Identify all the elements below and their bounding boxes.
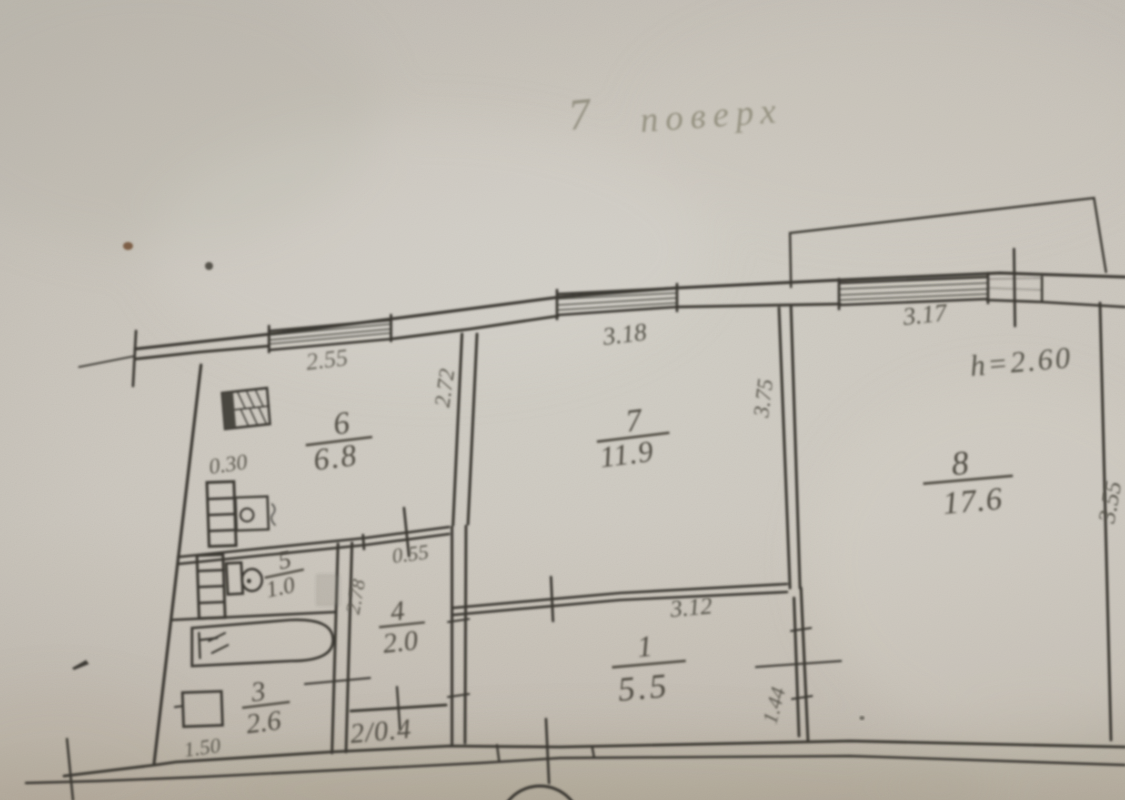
svg-text:5.5: 5.5 [616, 667, 671, 708]
svg-text:1: 1 [636, 630, 654, 664]
svg-text:3.75: 3.75 [748, 377, 778, 419]
svg-text:17.6: 17.6 [941, 480, 1004, 521]
svg-text:2.6: 2.6 [244, 705, 283, 740]
svg-text:2/0.4: 2/0.4 [349, 714, 413, 750]
svg-text:2.72: 2.72 [429, 367, 459, 409]
svg-text:1.50: 1.50 [182, 733, 222, 762]
svg-text:0.55: 0.55 [391, 540, 430, 568]
svg-text:6.8: 6.8 [311, 437, 360, 477]
svg-text:8: 8 [950, 445, 970, 483]
svg-text:3.18: 3.18 [600, 319, 648, 351]
svg-text:11.9: 11.9 [598, 435, 656, 474]
svg-text:0.30: 0.30 [207, 449, 249, 479]
svg-text:3.12: 3.12 [668, 593, 713, 623]
svg-text:2.0: 2.0 [381, 625, 419, 659]
svg-text:2.55: 2.55 [305, 345, 350, 376]
svg-text:3.17: 3.17 [901, 299, 950, 331]
